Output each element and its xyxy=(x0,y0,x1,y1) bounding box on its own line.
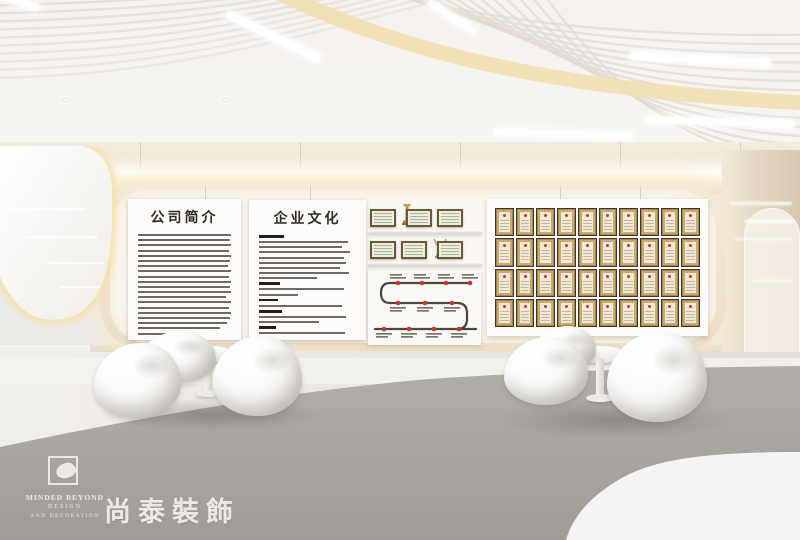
milestone-label xyxy=(376,336,388,338)
award-certificate xyxy=(496,239,513,265)
text-line xyxy=(259,262,346,264)
text-line xyxy=(138,255,231,257)
award-certificate xyxy=(620,239,637,265)
corporate-culture-panel: 企业文化 xyxy=(249,200,366,340)
arch-reflection xyxy=(744,208,800,368)
award-certificate xyxy=(579,300,596,326)
certificate-frame xyxy=(437,209,463,227)
text-line xyxy=(259,251,350,253)
award-certificate xyxy=(620,300,637,326)
honor-shelf-bottom xyxy=(370,241,463,259)
certificate-frame xyxy=(401,241,427,259)
award-certificate xyxy=(558,270,575,296)
brand-name-en: MINDED BEYOND xyxy=(25,493,105,502)
award-certificate xyxy=(600,300,617,326)
award-certificate xyxy=(517,239,534,265)
award-certificate xyxy=(641,300,658,326)
timeline-panel xyxy=(368,271,481,345)
milestone-dot xyxy=(407,327,412,332)
award-certificate xyxy=(558,209,575,235)
brand-logo-icon xyxy=(48,456,78,485)
milestone-label xyxy=(462,274,474,276)
award-certificate xyxy=(579,209,596,235)
text-line xyxy=(138,281,231,283)
text-line xyxy=(259,316,346,318)
milestone-label xyxy=(390,274,402,276)
text-line xyxy=(138,317,230,319)
corporate-culture-title: 企业文化 xyxy=(249,208,366,228)
company-intro-text xyxy=(138,234,231,335)
text-line xyxy=(138,234,231,236)
milestone-label xyxy=(417,307,433,309)
award-certificate xyxy=(496,270,513,296)
corporate-culture-text xyxy=(259,235,356,334)
award-certificate xyxy=(517,300,534,326)
light-reflection xyxy=(752,280,792,282)
text-line xyxy=(138,265,228,267)
milestone-label xyxy=(390,277,406,279)
milestone-dot xyxy=(382,327,387,332)
milestone-label xyxy=(451,336,463,338)
certificate-frame xyxy=(437,241,463,259)
milestone-dot xyxy=(450,301,455,306)
milestone-dot xyxy=(468,281,473,286)
timeline-graphic xyxy=(368,271,481,345)
text-line xyxy=(138,250,229,252)
milestone-label xyxy=(444,307,460,309)
milestone-dot xyxy=(420,281,425,286)
brand-tagline-2: AND DECORATION xyxy=(25,513,105,519)
milestone-label xyxy=(426,333,442,335)
text-line xyxy=(259,267,340,269)
milestone-dot xyxy=(396,281,401,286)
award-certificate xyxy=(620,209,637,235)
text-line xyxy=(138,327,220,329)
award-certificate xyxy=(682,270,699,296)
milestone-label xyxy=(390,310,402,312)
award-certificate xyxy=(600,209,617,235)
milestone-label xyxy=(462,277,478,279)
text-line xyxy=(138,260,230,262)
text-heading-line xyxy=(259,235,284,238)
milestone-dot xyxy=(444,281,449,286)
milestone-label xyxy=(401,333,417,335)
text-line xyxy=(138,322,227,324)
brand-tagline-1: DESIGN xyxy=(25,504,105,510)
certificate-frame xyxy=(370,209,396,227)
text-line xyxy=(259,277,317,279)
text-line xyxy=(138,270,231,272)
award-certificate xyxy=(600,270,617,296)
award-certificate xyxy=(682,209,699,235)
showroom-scene: 公司简介 企业文化 xyxy=(0,0,800,540)
company-intro-panel: 公司简介 xyxy=(128,199,241,340)
award-certificate xyxy=(600,239,617,265)
light-reflection xyxy=(734,238,792,240)
award-certificate xyxy=(682,300,699,326)
award-certificate xyxy=(662,270,679,296)
text-line xyxy=(138,244,231,246)
award-certificate xyxy=(517,270,534,296)
text-line xyxy=(138,276,229,278)
award-certificate xyxy=(662,239,679,265)
award-certificate xyxy=(641,270,658,296)
award-certificate xyxy=(537,209,554,235)
text-heading-line xyxy=(259,326,276,329)
text-line xyxy=(138,312,231,314)
downlight xyxy=(222,98,228,102)
award-certificate xyxy=(558,239,575,265)
certificate-frame xyxy=(406,209,432,227)
certificate-frame xyxy=(370,241,396,259)
light-reflection xyxy=(730,202,792,205)
award-certificate xyxy=(537,239,554,265)
text-line xyxy=(259,294,298,296)
milestone-label xyxy=(414,274,426,276)
text-line xyxy=(138,296,226,298)
award-certificate xyxy=(662,300,679,326)
award-certificate xyxy=(537,300,554,326)
left-sculpted-wall xyxy=(0,146,140,358)
text-line xyxy=(259,305,342,307)
light-reflection xyxy=(744,220,794,223)
text-heading-line xyxy=(259,310,282,313)
text-line xyxy=(259,288,344,290)
shelf-board xyxy=(368,262,482,266)
award-certificate xyxy=(579,239,596,265)
milestone-label xyxy=(438,277,454,279)
milestone-dot xyxy=(423,301,428,306)
milestone-label xyxy=(376,333,392,335)
award-certificate xyxy=(537,270,554,296)
honor-shelf-top xyxy=(370,209,463,227)
award-certificate xyxy=(517,209,534,235)
text-line xyxy=(259,241,348,243)
milestone-label xyxy=(417,310,429,312)
award-certificate xyxy=(579,270,596,296)
milestone-dot xyxy=(457,327,462,332)
text-line xyxy=(259,246,342,248)
award-certificate xyxy=(496,300,513,326)
text-line xyxy=(259,272,349,274)
award-certificate xyxy=(641,239,658,265)
milestone-label xyxy=(444,310,456,312)
milestone-label xyxy=(438,274,450,276)
milestone-label xyxy=(426,336,438,338)
text-line xyxy=(138,239,230,241)
company-intro-title: 公司简介 xyxy=(128,207,241,227)
award-certificate xyxy=(641,209,658,235)
text-heading-line xyxy=(259,282,280,285)
award-certificate xyxy=(620,270,637,296)
text-line xyxy=(138,301,231,303)
award-certificate xyxy=(682,239,699,265)
downlight xyxy=(62,98,68,102)
milestone-dot xyxy=(432,327,437,332)
left-wall-surface xyxy=(0,146,112,320)
text-line xyxy=(259,332,345,334)
milestone-label xyxy=(451,333,467,335)
text-line xyxy=(259,321,319,323)
award-certificate xyxy=(496,209,513,235)
award-certificate xyxy=(662,209,679,235)
brand-watermark: MINDED BEYOND DESIGN AND DECORATION 尚泰裝飾 xyxy=(28,456,288,536)
certificate-grid xyxy=(496,209,699,326)
text-line xyxy=(259,257,344,259)
text-heading-line xyxy=(259,299,278,302)
shelf-board xyxy=(368,230,482,234)
coffee-table-stem xyxy=(596,358,604,398)
milestone-label xyxy=(414,277,430,279)
certificate-wall-panel xyxy=(487,199,708,336)
milestone-label xyxy=(401,336,413,338)
award-certificate xyxy=(558,300,575,326)
text-line xyxy=(138,291,231,293)
milestone-dot xyxy=(396,301,401,306)
brand-name-cn: 尚泰裝飾 xyxy=(104,490,240,529)
right-glossy-wall xyxy=(722,150,800,375)
timeline-path xyxy=(375,283,476,329)
text-line xyxy=(138,307,229,309)
milestone-label xyxy=(390,307,406,309)
text-line xyxy=(138,286,230,288)
